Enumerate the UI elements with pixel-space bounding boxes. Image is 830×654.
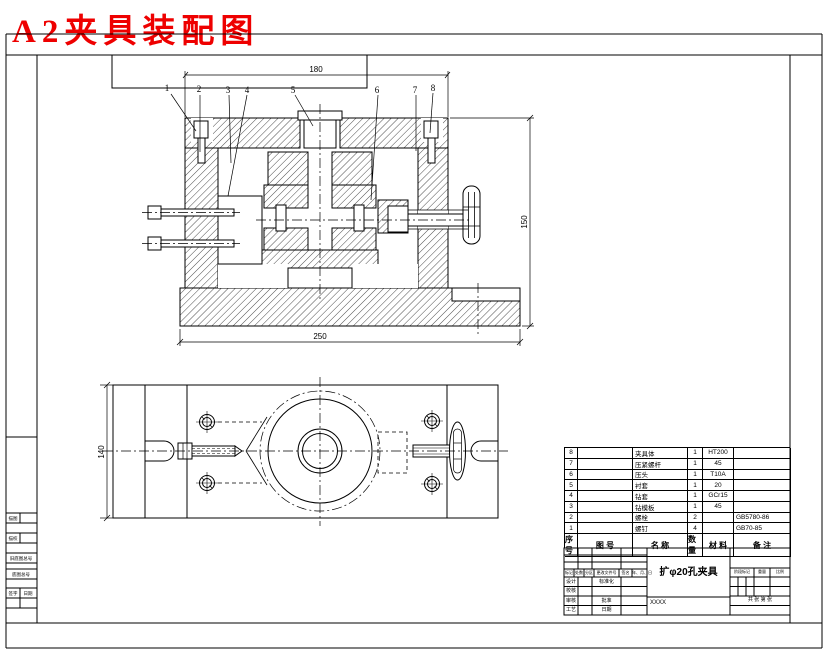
balloon-7: 7: [413, 85, 418, 95]
parts-cell-name: 压头: [633, 470, 688, 481]
handwheel: [463, 186, 480, 244]
parts-cell-seq: 8: [565, 448, 578, 459]
base-step: [452, 288, 520, 301]
dim-top: 180: [309, 65, 323, 74]
sign-label-audit: 审核: [564, 599, 578, 604]
margin-block-labels: 描图 描校 旧底图总号 底图总号 签字 日期: [9, 515, 33, 597]
parts-cell-code: [578, 491, 633, 502]
scale-label: 比例: [770, 570, 790, 574]
parts-cell-material: HT200: [703, 448, 734, 459]
parts-table: 8夹具体1HT2007压紧螺杆1456压头1T10A5衬套1204钻套1GCr1…: [564, 447, 790, 533]
balloon-8: 8: [431, 83, 436, 93]
rev-label: 处数: [574, 571, 584, 575]
stage-mark-label: 阶段标记: [730, 570, 754, 574]
parts-cell-name: 衬套: [633, 480, 688, 491]
parts-cell-material: T10A: [703, 470, 734, 481]
header-remark: 备 注: [734, 534, 791, 557]
margin-label: 底图总号: [12, 571, 30, 578]
parts-cell-qty: 1: [688, 480, 703, 491]
sign-label-process: 工艺: [564, 608, 578, 613]
parts-cell-name: 螺栓: [633, 513, 688, 524]
sign-label-approve: 批准: [592, 599, 621, 604]
parts-cell-seq: 2: [565, 513, 578, 524]
margin-label: 旧底图总号: [10, 555, 33, 562]
header-seq: 序号: [565, 534, 578, 557]
parts-cell-qty: 1: [688, 448, 703, 459]
sign-label-check: 校核: [564, 589, 578, 594]
parts-cell-qty: 1: [688, 459, 703, 470]
balloon-5: 5: [291, 85, 296, 95]
sheet-count: 共 张 第 张: [730, 598, 790, 603]
parts-cell-remark: [734, 470, 791, 481]
header-code: 图 号: [578, 534, 633, 557]
margin-label: 签字: [9, 590, 18, 596]
parts-cell-material: 45: [703, 502, 734, 513]
drawing-sheet: A2夹具装配图: [0, 0, 830, 654]
top-plan-view: 140: [97, 377, 508, 526]
parts-cell-qty: 2: [688, 513, 703, 524]
drawing-name: 扩φ20孔夹具: [647, 548, 730, 597]
front-section-view: 180 150 250 1 2 3 4 5 6: [142, 65, 534, 346]
parts-cell-name: 夹具体: [633, 448, 688, 459]
balloon-6: 6: [375, 85, 380, 95]
parts-cell-qty: 1: [688, 502, 703, 513]
parts-cell-material: 45: [703, 459, 734, 470]
parts-cell-code: [578, 448, 633, 459]
rev-label: 年、月、日: [632, 571, 647, 575]
balloon-3: 3: [226, 85, 231, 95]
parts-cell-code: [578, 459, 633, 470]
parts-cell-code: [578, 470, 633, 481]
sign-label-design: 设计: [564, 580, 578, 585]
balloon-1: 1: [165, 83, 170, 93]
dim-right: 150: [520, 215, 529, 229]
rev-label: 分区: [584, 571, 594, 575]
parts-cell-qty: 1: [688, 491, 703, 502]
parts-cell-name: 钻模板: [633, 502, 688, 513]
parts-cell-remark: [734, 448, 791, 459]
weight-label: 重量: [754, 570, 770, 574]
parts-cell-seq: 7: [565, 459, 578, 470]
rev-label: 更改文件号: [594, 571, 619, 575]
parts-cell-seq: 6: [565, 470, 578, 481]
sign-label-standard: 标准化: [592, 580, 621, 585]
parts-cell-remark: GB5780-86: [734, 513, 791, 524]
parts-cell-code: [578, 480, 633, 491]
slide-block: [218, 196, 262, 264]
rev-label: 签名: [619, 571, 632, 575]
rev-label: 标记: [564, 571, 574, 575]
dim-bottom: 250: [313, 332, 327, 341]
dim-left: 140: [97, 445, 106, 459]
margin-label: 描校: [9, 535, 18, 542]
parts-cell-remark: [734, 480, 791, 491]
parts-cell-name: 压紧螺杆: [633, 459, 688, 470]
bushing-right: [354, 205, 364, 231]
parts-cell-material: [703, 513, 734, 524]
margin-label: 日期: [24, 591, 33, 597]
title-corner-box: [112, 55, 367, 88]
parts-cell-name: 钻套: [633, 491, 688, 502]
clamp-nut: [388, 206, 408, 232]
org-field: XXXX: [650, 600, 666, 606]
parts-cell-seq: 4: [565, 491, 578, 502]
parts-cell-remark: [734, 459, 791, 470]
bushing-left: [276, 205, 286, 231]
parts-table-header: 序号 图 号 名 称 数量 材 料 备 注: [564, 533, 790, 548]
parts-cell-seq: 3: [565, 502, 578, 513]
parts-cell-code: [578, 513, 633, 524]
sign-label-date: 日期: [592, 608, 621, 613]
margin-block: [6, 437, 37, 608]
parts-cell-code: [578, 502, 633, 513]
margin-label: 描图: [9, 515, 18, 522]
parts-cell-qty: 1: [688, 470, 703, 481]
parts-cell-seq: 5: [565, 480, 578, 491]
balloon-numbers: 1 2 3 4 5 6 7 8: [165, 83, 436, 95]
parts-cell-remark: [734, 491, 791, 502]
parts-cell-remark: [734, 502, 791, 513]
cap-screw-left: [194, 121, 208, 138]
parts-cell-material: 20: [703, 480, 734, 491]
balloon-2: 2: [197, 84, 202, 94]
balloon-4: 4: [245, 85, 250, 95]
parts-cell-material: GCr15: [703, 491, 734, 502]
